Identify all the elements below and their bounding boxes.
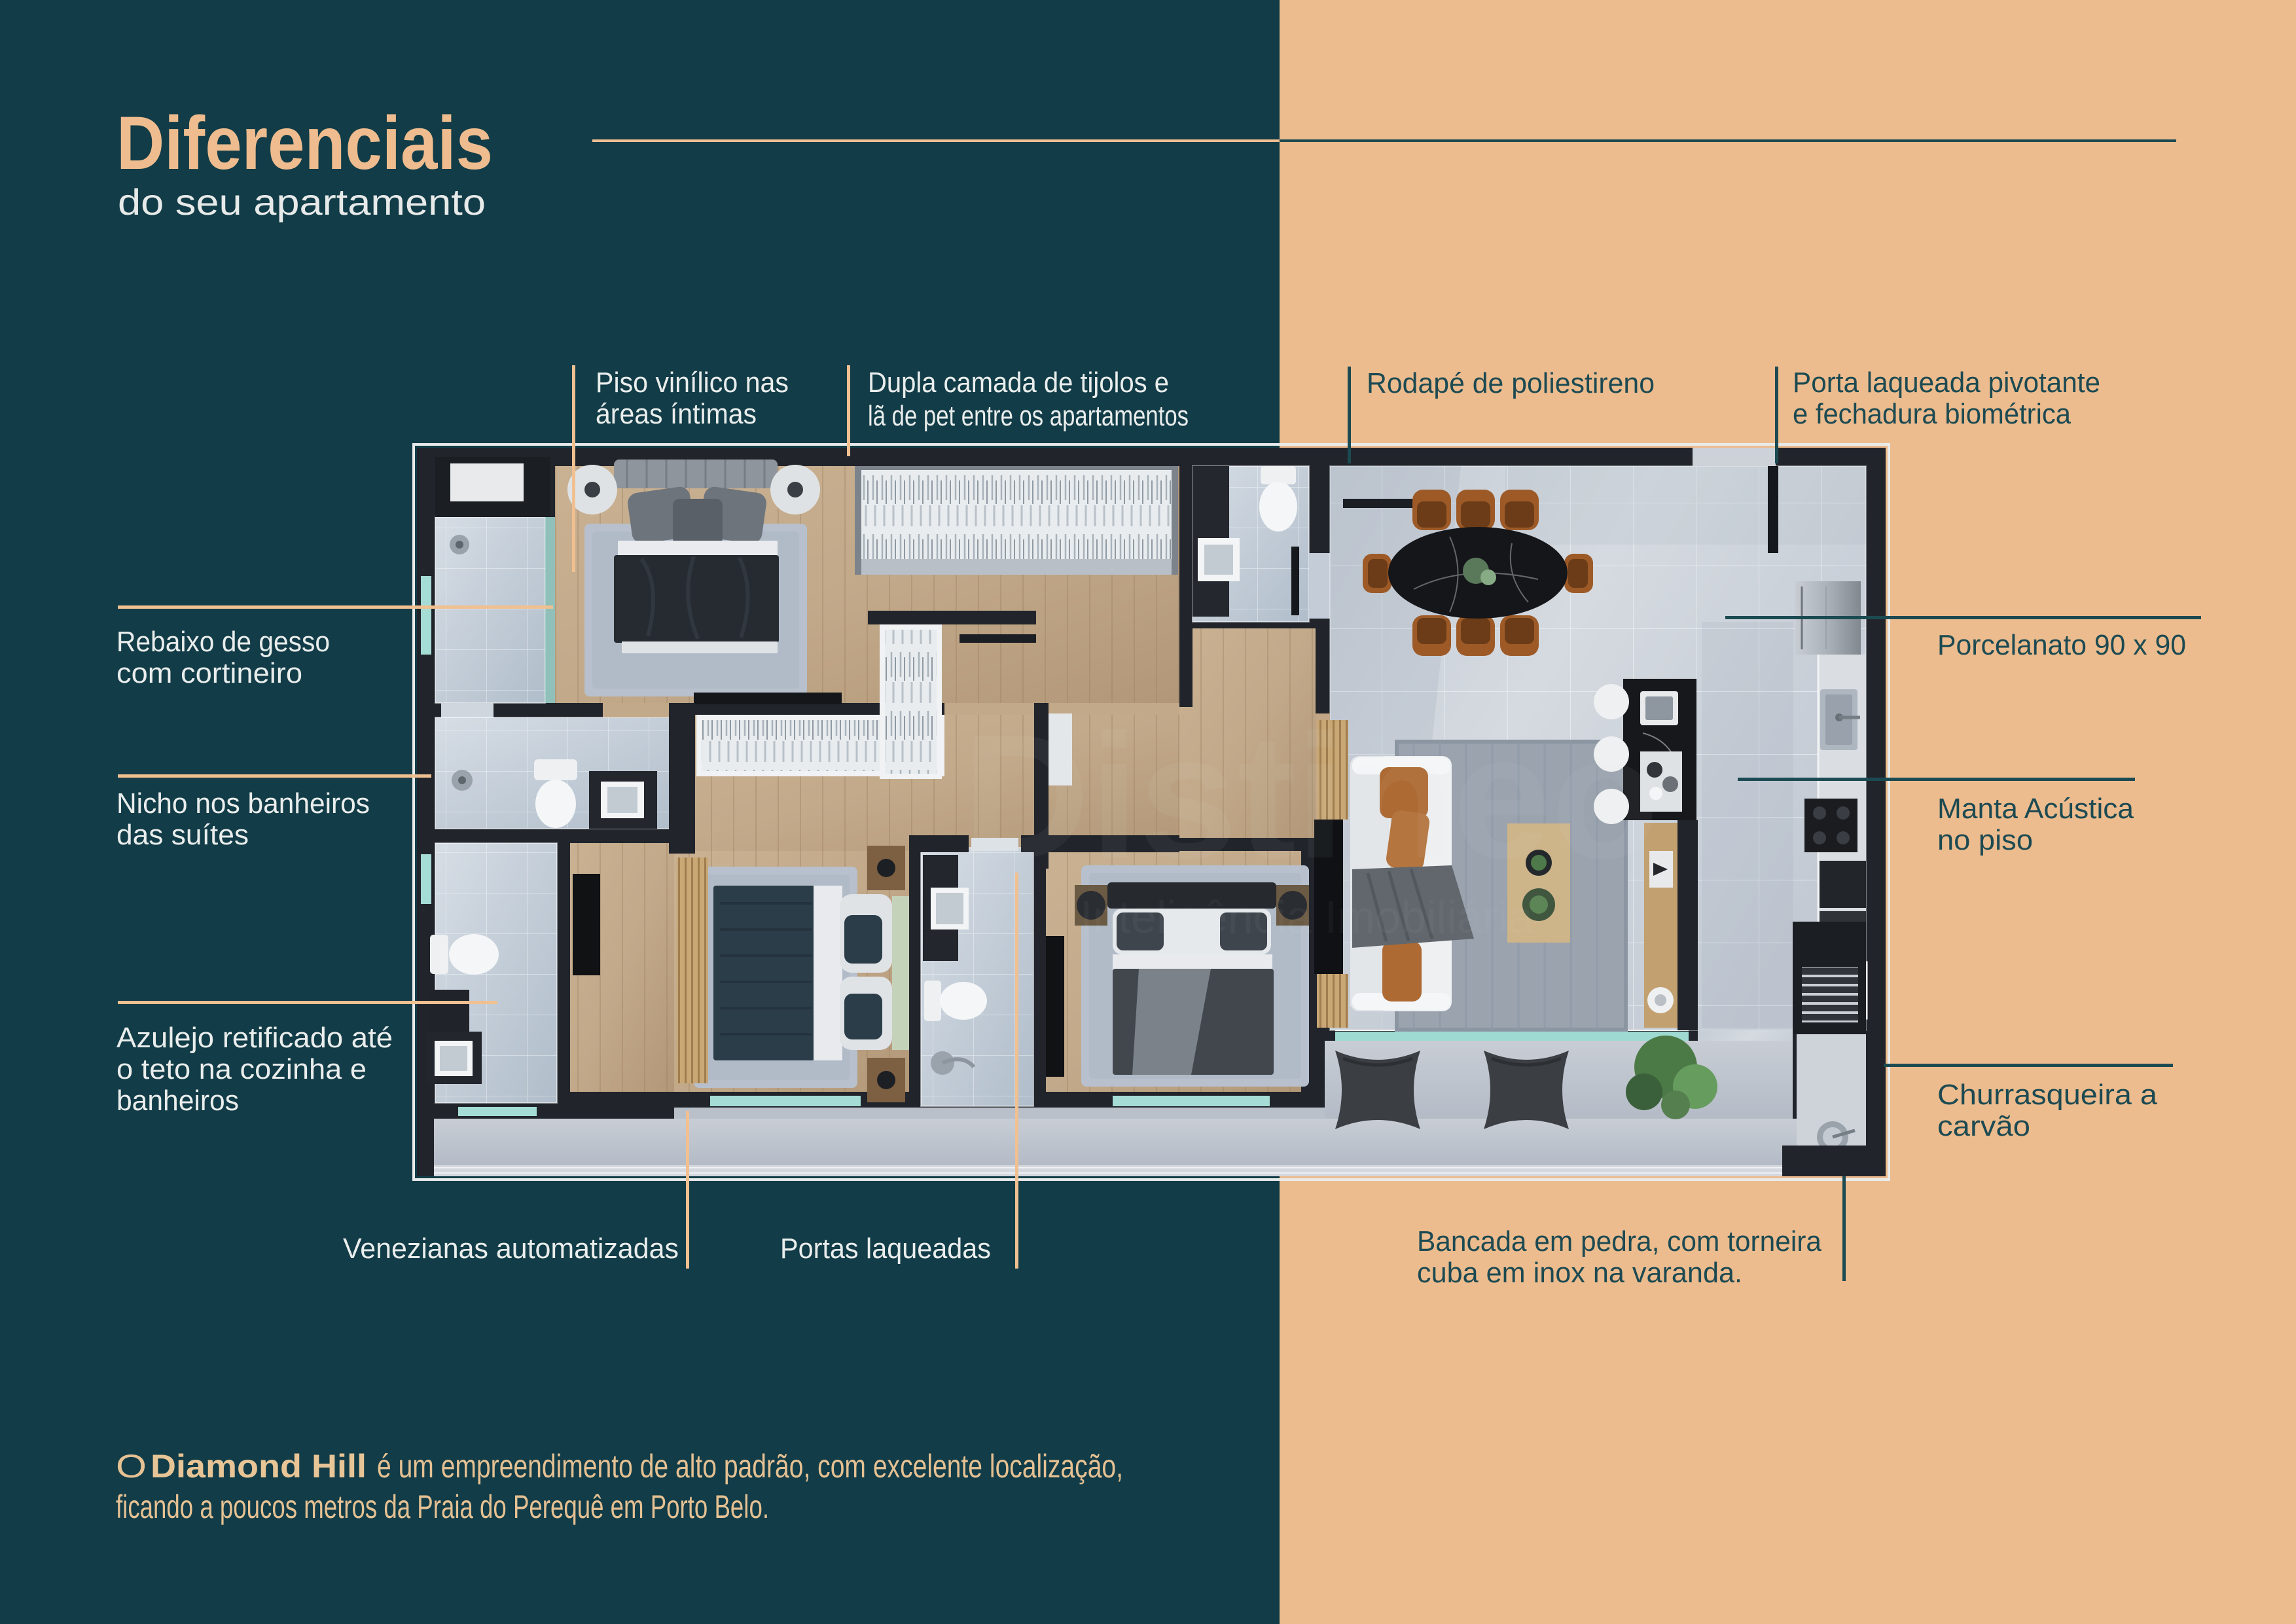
svg-text:Inteligência Imobiliária: Inteligência Imobiliária [1080, 892, 1534, 943]
svg-text:Portas laqueadas: Portas laqueadas [780, 1233, 991, 1265]
svg-text:Porta laqueada pivotante: Porta laqueada pivotante [1793, 367, 2100, 399]
svg-text:e fechadura biométrica: e fechadura biométrica [1793, 398, 2071, 430]
svg-text:Distineo: Distineo [962, 698, 1659, 895]
svg-text:Bancada em pedra, com torneira: Bancada em pedra, com torneira [1417, 1225, 1822, 1257]
svg-text:O: O [116, 1448, 147, 1485]
svg-text:Manta Acústica: Manta Acústica [1937, 793, 2134, 825]
svg-text:Churrasqueira a: Churrasqueira a [1937, 1079, 2158, 1111]
svg-text:o teto na cozinha e: o teto na cozinha e [117, 1053, 367, 1085]
svg-text:Porcelanato 90 x 90: Porcelanato 90 x 90 [1937, 629, 2186, 661]
svg-text:Nicho nos banheiros: Nicho nos banheiros [117, 787, 370, 820]
svg-text:cuba em inox na varanda.: cuba em inox na varanda. [1417, 1257, 1742, 1289]
svg-text:Piso vinílico nas: Piso vinílico nas [596, 367, 789, 399]
svg-text:com cortineiro: com cortineiro [117, 657, 302, 689]
svg-text:Venezianas automatizadas: Venezianas automatizadas [343, 1233, 679, 1265]
svg-text:Diferenciais: Diferenciais [117, 101, 493, 185]
svg-text:Azulejo retificado até: Azulejo retificado até [117, 1022, 393, 1054]
svg-text:carvão: carvão [1937, 1110, 2030, 1142]
svg-text:no piso: no piso [1937, 824, 2033, 856]
svg-text:banheiros: banheiros [117, 1085, 239, 1117]
svg-text:lã de pet entre os apartamento: lã de pet entre os apartamentos [868, 400, 1189, 432]
svg-text:Rodapé de poliestireno: Rodapé de poliestireno [1367, 367, 1655, 399]
svg-text:Dupla camada de tijolos e: Dupla camada de tijolos e [868, 367, 1169, 399]
svg-text:Diamond Hill: Diamond Hill [151, 1448, 367, 1485]
svg-text:áreas íntimas: áreas íntimas [596, 398, 757, 430]
svg-text:Rebaixo de gesso: Rebaixo de gesso [117, 626, 330, 658]
svg-text:das suítes: das suítes [117, 819, 249, 851]
svg-text:é um empreendimento de alto pa: é um empreendimento de alto padrão, com … [377, 1448, 1123, 1485]
svg-text:ficando a poucos metros da Pra: ficando a poucos metros da Praia do Pere… [116, 1489, 769, 1525]
svg-text:do seu apartamento: do seu apartamento [118, 181, 486, 223]
